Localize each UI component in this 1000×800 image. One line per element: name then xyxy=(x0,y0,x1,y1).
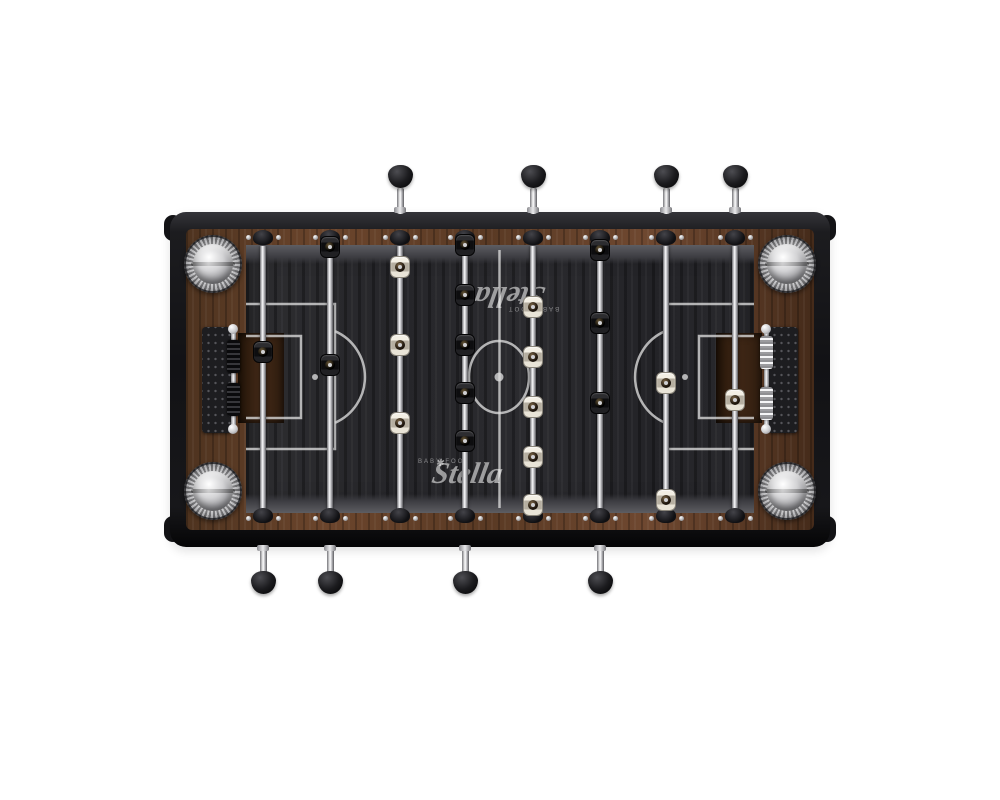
chrome-ashtray xyxy=(184,462,242,520)
chrome-ashtray xyxy=(184,235,242,293)
chrome-ashtray xyxy=(758,462,816,520)
ashtray-layer xyxy=(0,0,1000,800)
chrome-ashtray xyxy=(758,235,816,293)
foosball-table-render: BABY-FOOTStella✱BABY-FOOTStella✱ xyxy=(0,0,1000,800)
